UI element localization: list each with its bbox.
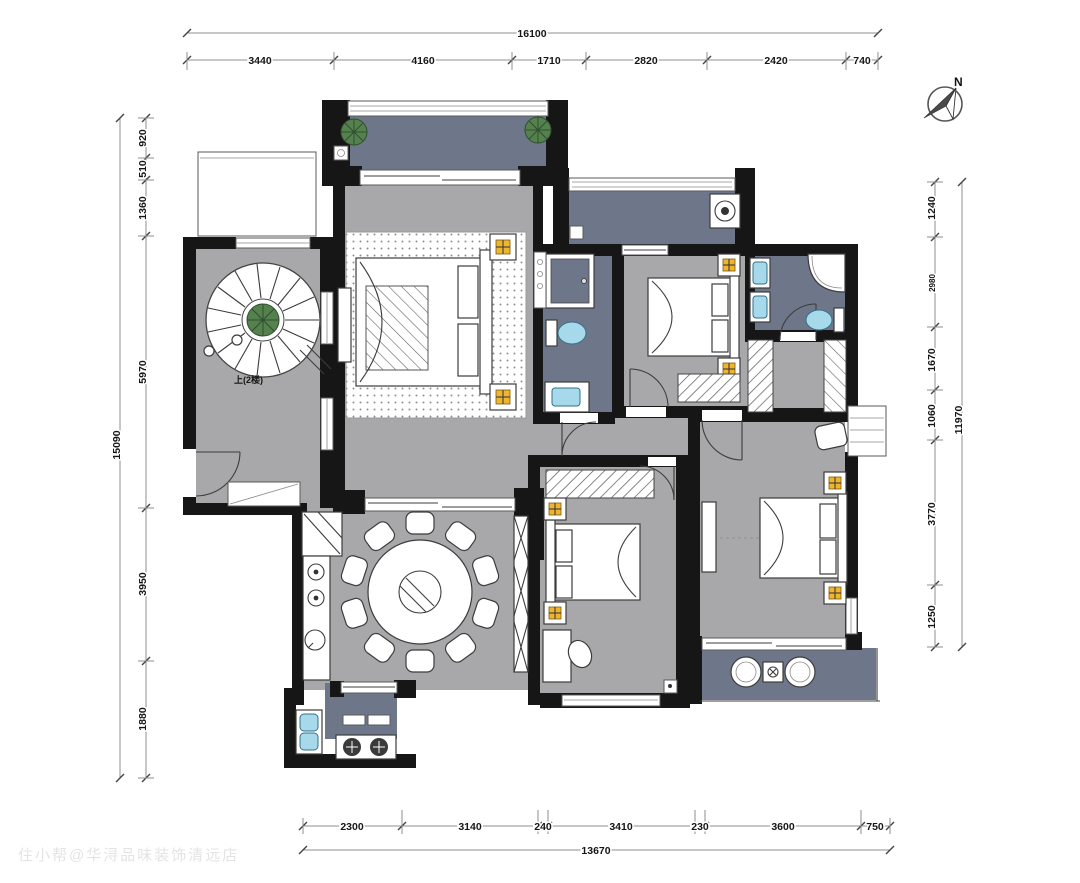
- nightstand-lamp: [490, 234, 516, 260]
- dining-cabinet: [514, 516, 528, 672]
- dining-table: [368, 540, 472, 644]
- dining-slider: [365, 498, 515, 511]
- master-balcony-slider: [360, 170, 520, 185]
- dim-bottom-1: 3140: [458, 821, 482, 833]
- dim-left-0: 920: [137, 129, 149, 147]
- north-arrow: N: [924, 75, 963, 121]
- dim-top-total: 16100: [517, 28, 546, 40]
- master-bed: [356, 250, 492, 394]
- wardrobe: [678, 374, 740, 402]
- nightstand-lamp: [544, 498, 566, 520]
- dim-right-1: 2980: [928, 274, 937, 292]
- dim-bottom-2: 240: [534, 821, 552, 833]
- washing-machine: [710, 194, 740, 228]
- watermark-text: 住小帮@华浔品味装饰清远店: [18, 847, 239, 864]
- dim-top-0: 3440: [248, 55, 272, 67]
- closet: [748, 340, 773, 412]
- stool: [731, 657, 761, 687]
- toilet: [546, 320, 586, 346]
- kitchen-sink: [296, 710, 322, 754]
- dim-left-3: 5970: [137, 360, 149, 384]
- dim-top-1: 4160: [411, 55, 435, 67]
- dim-top-4: 2420: [764, 55, 788, 67]
- dim-right-4: 3770: [926, 502, 938, 526]
- nightstand-lamp: [824, 582, 846, 604]
- nightstand-lamp: [824, 472, 846, 494]
- dim-bottom-4: 230: [691, 821, 709, 833]
- desk: [543, 630, 571, 682]
- dim-left-total: 15090: [111, 430, 123, 459]
- bath-shelf: [534, 252, 546, 308]
- floor-plan-drawing: 上(2楼): [0, 0, 1080, 883]
- bedroom4-balcony-slider: [702, 638, 846, 650]
- dim-right-3: 1060: [926, 404, 938, 428]
- kitchen-counter: [303, 556, 330, 680]
- dim-bottom-0: 2300: [340, 821, 364, 833]
- dim-right-2: 1670: [926, 348, 938, 372]
- plant: [525, 117, 551, 143]
- exterior-court: [198, 152, 316, 236]
- bedroom3-window: [562, 695, 660, 706]
- wardrobe: [546, 470, 654, 498]
- toilet: [806, 308, 844, 332]
- dim-left-4: 3950: [137, 572, 149, 596]
- vanity-sink: [545, 382, 589, 412]
- dim-top-2: 1710: [537, 55, 561, 67]
- bay-window-box: [848, 406, 886, 456]
- nightstand-lamp: [544, 602, 566, 624]
- laundry-railing: [569, 178, 735, 191]
- floor-drain: [334, 146, 348, 160]
- dimension-left: 920 510 1360 5970 3950 1880 15090: [111, 114, 154, 782]
- dim-left-5: 1880: [137, 707, 149, 731]
- dim-left-1: 510: [137, 160, 149, 178]
- tv-cabinet: [702, 502, 716, 572]
- dim-left-2: 1360: [137, 196, 149, 220]
- floor-plan-canvas: 上(2楼): [0, 0, 1080, 883]
- dim-top-5: 740: [853, 55, 871, 67]
- shower: [546, 254, 594, 308]
- north-label: N: [954, 75, 963, 89]
- floor-drain: [570, 226, 583, 239]
- nightstand-lamp: [490, 384, 516, 410]
- south-balcony-furniture: [731, 657, 815, 687]
- stair-direction-label: 上(2楼): [234, 374, 263, 385]
- master-bedroom-furniture: [338, 232, 526, 418]
- dimension-top: 16100 3440 4160 1710 2820 2420 740: [183, 28, 882, 70]
- closet: [824, 340, 846, 412]
- dim-right-0: 1240: [926, 196, 938, 220]
- bed: [546, 520, 640, 604]
- dim-right-total: 11970: [953, 406, 965, 435]
- dim-right-5: 1250: [926, 605, 938, 629]
- stool: [785, 657, 815, 687]
- plant: [341, 119, 367, 145]
- dresser: [338, 288, 351, 362]
- dim-top-3: 2820: [634, 55, 658, 67]
- stair-plant: [247, 304, 279, 336]
- dim-bottom-6: 750: [866, 821, 884, 833]
- nightstand-lamp: [718, 254, 740, 276]
- dim-bottom-3: 3410: [609, 821, 633, 833]
- bed: [648, 272, 739, 362]
- dimension-right: 1240 2980 1670 1060 3770 1250 11970: [926, 178, 966, 651]
- dimension-bottom: 2300 3140 240 3410 230 3600 750 13670: [299, 810, 894, 857]
- dim-bottom-total: 13670: [581, 845, 610, 857]
- dim-bottom-5: 3600: [771, 821, 795, 833]
- north-balcony-railing: [348, 101, 548, 116]
